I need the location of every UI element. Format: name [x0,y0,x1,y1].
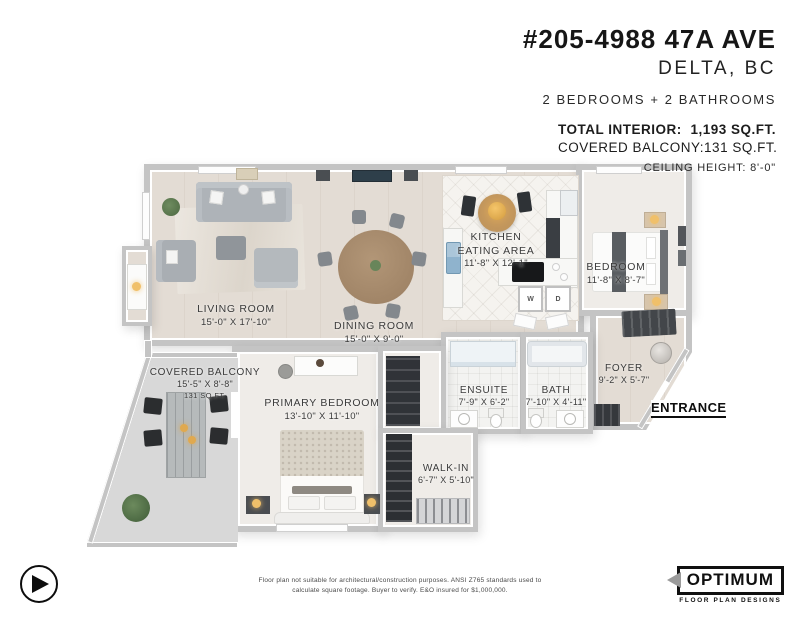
room-name: WALK-IN [418,462,474,475]
room-label-ensuite: ENSUITE 7'-9" X 6'-2" [459,384,510,409]
bath-sink [564,413,576,425]
room-dims: 15'-0" X 9'-0" [334,334,414,346]
washer-closet: W [518,286,543,312]
foyer-shoe-cabinet [621,309,676,338]
logo-arrow-icon [667,572,681,588]
balcony-plant [122,494,150,522]
total-interior-row: TOTAL INTERIOR: 1,193 SQ.FT. [558,122,776,137]
table-plant [370,260,381,271]
foyer-vase [650,342,672,364]
primary-dresser [294,356,358,376]
room-name: PRIMARY BEDROOM [264,397,379,411]
loveseat [254,248,298,288]
foyer-coat-rack [594,404,620,426]
balcony-candle [180,424,188,432]
beds-baths-summary: 2 BEDROOMS + 2 BATHROOMS [523,92,776,107]
room-label-living: LIVING ROOM 15'-0" X 17'-10" [197,303,275,329]
gold-pendant-light [488,202,506,220]
room-dims: 11'-8" X 8'-7" [586,275,645,287]
total-interior-label: TOTAL INTERIOR: [558,122,682,137]
floor-lamp [238,184,249,195]
dining-chair [343,305,360,322]
kettle [552,263,560,271]
balcony-top-wall [148,352,238,358]
wall-art [236,168,258,180]
sofa-pillow [209,190,224,205]
bedside-lamp [650,215,659,224]
dryer-label: D [555,296,560,303]
room-name: COVERED BALCONY [150,366,261,379]
living-side-window [142,192,150,240]
primary-bedside-lamp [252,499,261,508]
room-dims: 11'-8" X 12'-1" [458,258,535,270]
room-label-bath: BATH 7'-10" X 4'-11" [526,384,587,409]
room-dims: 15'-5" X 8'-8" [150,379,261,391]
armchair-pillow [166,250,178,264]
room-dims: 15'-0" X 17'-10" [197,317,275,329]
dining-chair [385,303,401,319]
washer-label: W [527,296,534,303]
covered-balcony-row: COVERED BALCONY: 131 SQ.FT. [558,140,776,155]
dining-chair [411,251,427,267]
room-label-foyer: FOYER 9'-2" X 5'-7" [599,362,650,387]
tv-art-frame [352,170,392,182]
wall-art-frame [678,250,686,266]
walkin-hanging-clothes [386,434,412,522]
nook-lamp [132,282,141,291]
logo-tagline: FLOOR PLAN DESIGNS [677,597,784,604]
dresser-decor [316,359,324,367]
kettle [560,273,568,281]
room-area: 131 SQ.FT. [150,391,261,401]
walkin-lower-rack [416,498,470,524]
bathtub [527,341,587,367]
room-name: FOYER [599,362,650,375]
primary-accent-pillow [292,486,352,494]
room-name: LIVING ROOM [197,303,275,317]
play-icon [32,575,49,593]
floor-plan-page: #205-4988 47A AVE DELTA, BC 2 BEDROOMS +… [0,0,800,619]
basket [278,364,293,379]
bath-toilet [530,414,542,428]
room-name: EATING AREA [458,245,535,259]
primary-bedroom-window [276,524,348,532]
room-name: KITCHEN [458,231,535,245]
wall-patch-left [144,340,152,358]
room-label-balcony: COVERED BALCONY 15'-5" X 8'-8" 131 SQ.FT… [150,366,261,400]
dining-chair [317,251,333,267]
room-dims: 13'-10" X 11'-10" [264,411,379,423]
room-label-dining: DINING ROOM 15'-0" X 9'-0" [334,320,414,346]
room-name: ENSUITE [459,384,510,397]
wall-vent-panel [404,170,418,181]
primary-bedside-lamp [367,498,376,507]
primary-pillow [288,496,320,510]
room-label-walkin: WALK-IN 6'-7" X 5'-10" [418,462,474,487]
room-label-primary: PRIMARY BEDROOM 13'-10" X 11'-10" [264,397,379,423]
wall-art-frame [678,226,686,246]
dryer-closet: D [545,286,571,312]
primary-pillow [324,496,356,510]
optimum-logo: OPTIMUM FLOOR PLAN DESIGNS [677,566,784,604]
ensuite-shower [450,341,516,367]
city-subtitle: DELTA, BC [523,58,776,80]
ensuite-toilet [490,414,502,428]
room-dims: 7'-9" X 6'-2" [459,397,510,409]
bedroom-pillow [646,237,656,259]
balcony-candle [188,436,196,444]
balcony-chair [209,427,228,445]
play-button[interactable] [20,565,58,603]
address-title: #205-4988 47A AVE [523,24,776,55]
balcony-table [166,392,206,478]
bedroom-headboard [660,230,668,294]
walkin-wardrobe [386,356,420,426]
room-dims: 7'-10" X 4'-11" [526,397,587,409]
area-stats: TOTAL INTERIOR: 1,193 SQ.FT. COVERED BAL… [523,122,776,174]
primary-headboard [274,512,370,524]
room-label-bedroom: BEDROOM 11'-8" X 8'-7" [586,261,645,287]
entrance-label: ENTRANCE [651,400,726,418]
balcony-chair [143,429,162,447]
fridge [560,190,578,216]
dining-chair [352,210,366,224]
primary-bed-blanket [280,430,364,476]
balcony-bottom-wall [86,542,238,548]
covered-balcony-label: COVERED BALCONY: [558,140,704,155]
kitchen-window [455,166,507,174]
total-interior-value: 1,193 SQ.FT. [690,122,776,137]
room-name: BEDROOM [586,261,645,275]
room-name: DINING ROOM [334,320,414,334]
bedside-lamp [652,297,661,306]
room-name: BATH [526,384,587,397]
logo-name: OPTIMUM [687,570,774,589]
kitchen-chair [461,195,477,217]
covered-balcony-value: 131 SQ.FT. [704,140,777,155]
sofa-pillow [261,190,275,204]
room-dims: 6'-7" X 5'-10" [418,475,474,487]
room-dims: 9'-2" X 5'-7" [599,375,650,387]
listing-header: #205-4988 47A AVE DELTA, BC 2 BEDROOMS +… [523,24,776,174]
bedroom-pillow [646,263,656,285]
ensuite-sink [458,413,470,425]
ottoman [216,236,246,260]
logo-box: OPTIMUM [677,566,784,595]
ceiling-height: CEILING HEIGHT: 8'-0" [523,162,776,174]
wall-vent-panel [316,170,330,181]
room-label-kitchen: KITCHEN EATING AREA 11'-8" X 12'-1" [458,231,535,271]
plant [162,198,180,216]
kitchen-chair [517,191,533,213]
